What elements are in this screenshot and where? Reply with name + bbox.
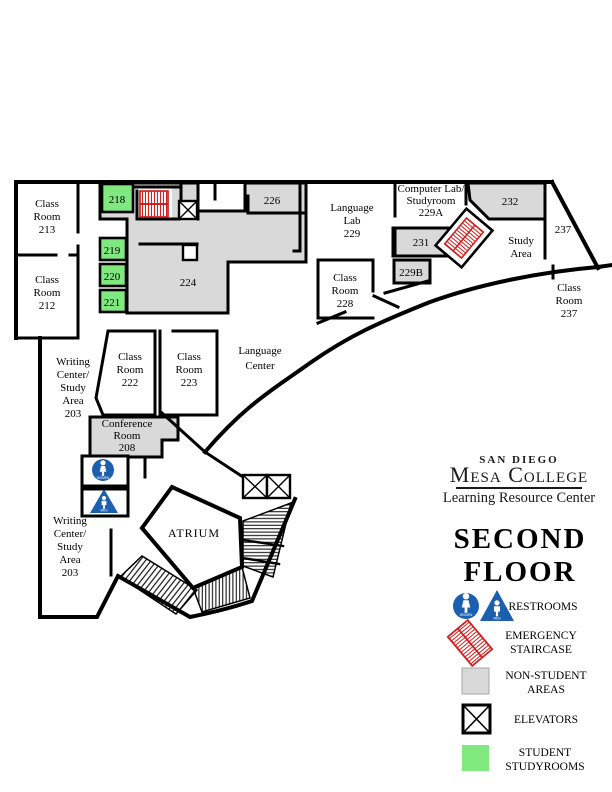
floor-plan-svg: WOMEN MEN Class Room 213 Class Room 212 … xyxy=(0,0,612,792)
room-229b-label: 229B xyxy=(399,267,423,279)
room-226-label: 226 xyxy=(264,195,281,207)
svg-text:208: 208 xyxy=(119,442,136,454)
svg-text:203: 203 xyxy=(65,408,82,420)
svg-text:Lab: Lab xyxy=(343,215,361,227)
svg-text:237: 237 xyxy=(561,308,578,320)
svg-text:Study: Study xyxy=(57,541,83,553)
floor-plan-page: WOMEN MEN Class Room 213 Class Room 212 … xyxy=(0,0,612,792)
legend-staircase-icon xyxy=(448,620,492,666)
school-name-line2: Mesa College xyxy=(450,462,588,487)
legend-restrooms-label: RESTROOMS xyxy=(508,601,577,613)
svg-text:Area: Area xyxy=(510,248,531,260)
svg-text:Area: Area xyxy=(62,395,83,407)
svg-text:Room: Room xyxy=(34,211,61,223)
conference-room-label: Conference xyxy=(102,418,153,430)
svg-text:Center/: Center/ xyxy=(57,369,90,381)
svg-text:213: 213 xyxy=(39,224,56,236)
language-center-label: Language xyxy=(238,345,281,357)
corridor-cutout xyxy=(199,183,245,211)
legend: WOMEN MEN RESTROOMS EMERGENCY STAIRCASE … xyxy=(448,590,587,773)
writing-center-north-label: Writing xyxy=(56,356,90,368)
svg-text:Center: Center xyxy=(245,360,275,372)
svg-text:Center/: Center/ xyxy=(54,528,87,540)
room-218-label: 218 xyxy=(109,194,126,206)
svg-text:Room: Room xyxy=(114,430,141,442)
floor-title-line1: SECOND xyxy=(454,523,587,555)
svg-text:Room: Room xyxy=(556,295,583,307)
svg-text:Room: Room xyxy=(34,287,61,299)
svg-text:228: 228 xyxy=(337,298,354,310)
svg-text:STAIRCASE: STAIRCASE xyxy=(510,644,572,656)
branding-block: SAN DIEGO Mesa College Learning Resource… xyxy=(443,454,595,588)
atrium-zone xyxy=(120,487,291,614)
restrooms-plan: WOMEN MEN xyxy=(82,456,128,516)
svg-text:222: 222 xyxy=(122,377,139,389)
svg-text:AREAS: AREAS xyxy=(527,684,565,696)
legend-studyrooms-label: STUDENT xyxy=(519,747,571,759)
corridor-curve-wall xyxy=(205,265,612,452)
language-lab-label: Language xyxy=(330,202,373,214)
study-area-label: Study xyxy=(508,235,534,247)
svg-text:Studyroom: Studyroom xyxy=(407,195,456,207)
svg-text:223: 223 xyxy=(181,377,198,389)
svg-text:Room: Room xyxy=(176,364,203,376)
closet-cutout xyxy=(183,245,197,260)
room-221-label: 221 xyxy=(104,297,121,309)
emergency-staircase-east-icon xyxy=(436,209,493,268)
legend-men-icon-label: MEN xyxy=(493,617,501,621)
room-219-label: 219 xyxy=(104,245,121,257)
legend-women-icon-label: WOMEN xyxy=(460,613,473,617)
writing-center-south-label: Writing xyxy=(53,515,87,527)
computer-lab-label: Computer Lab/ xyxy=(398,183,466,195)
room-232-label: 232 xyxy=(502,196,519,208)
men-icon-label: MEN xyxy=(100,509,108,513)
svg-text:Area: Area xyxy=(59,554,80,566)
emergency-staircase-north-icon xyxy=(140,191,168,217)
legend-non-student-label: NON-STUDENT xyxy=(505,670,586,682)
room-223-label: Class xyxy=(177,351,201,363)
svg-text:Room: Room xyxy=(332,285,359,297)
room-212-label: Class xyxy=(35,274,59,286)
room-237-label: Class xyxy=(557,282,581,294)
svg-text:212: 212 xyxy=(39,300,56,312)
svg-text:STUDYROOMS: STUDYROOMS xyxy=(505,761,584,773)
floor-title-line2: FLOOR xyxy=(463,556,576,588)
corridor-237-label: 237 xyxy=(555,224,572,236)
svg-text:229: 229 xyxy=(344,228,361,240)
svg-text:Study: Study xyxy=(60,382,86,394)
room-224-label: 224 xyxy=(180,277,197,289)
legend-elevators-label: ELEVATORS xyxy=(514,714,578,726)
legend-studyroom-icon xyxy=(462,745,489,771)
room-228-label: Class xyxy=(333,272,357,284)
atrium-label: ATRIUM xyxy=(168,526,220,540)
svg-text:229A: 229A xyxy=(419,207,444,219)
division-name: Learning Resource Center xyxy=(443,490,595,506)
room-231-label: 231 xyxy=(413,237,430,249)
legend-staircase-label: EMERGENCY xyxy=(505,630,577,642)
room-220-label: 220 xyxy=(104,271,121,283)
women-icon-label: WOMEN xyxy=(97,476,110,480)
svg-text:203: 203 xyxy=(62,567,79,579)
legend-non-student-icon xyxy=(462,668,489,694)
room-213-label: Class xyxy=(35,198,59,210)
svg-text:Room: Room xyxy=(117,364,144,376)
room-222-label: Class xyxy=(118,351,142,363)
